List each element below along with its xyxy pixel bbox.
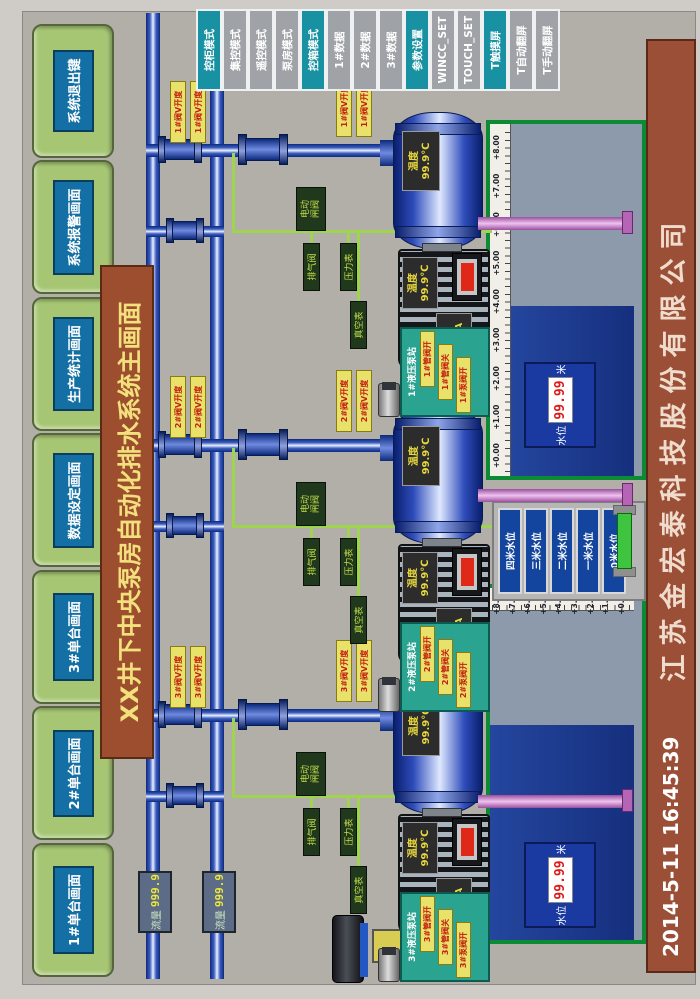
mode-button-3[interactable]: 遥控模式: [248, 9, 274, 91]
pump-flange-ring: [395, 521, 481, 533]
suction-pipe: [478, 489, 628, 502]
hydraulic-station-title: 3#液压泵站: [405, 894, 418, 980]
motor-temp-value: 99.9℃: [420, 560, 432, 597]
gate-valve-box: 电动 闸阀: [296, 752, 326, 796]
hydraulic-tag: 1#泵阀开: [456, 357, 471, 413]
hydraulic-tag: 2#泵阀开: [456, 652, 471, 708]
pressure-gauge-box: 压力表: [340, 808, 357, 856]
signal-line: [232, 718, 235, 798]
gate-valve-label-line2: 闸阀: [311, 765, 321, 783]
hmi-stage: 流量 999.9 流量 999.9 +8.00+7.00+6.00+5.00+4…: [0, 0, 700, 999]
pressure-gauge-box: 压力表: [340, 538, 357, 586]
nav-button-label: 3#单台画面: [53, 593, 94, 681]
terminal-frame: [457, 554, 477, 590]
link-valve[interactable]: [172, 516, 198, 535]
nav-button-label: 系统退出键: [53, 51, 94, 132]
signal-line: [357, 798, 360, 868]
water-level-value: 99.99: [548, 377, 573, 422]
mode-button-14[interactable]: T手动翻屏: [534, 9, 560, 91]
scale-tick-label: +7.00: [492, 174, 501, 199]
datetime-display: 2014-5-11 16:45:39: [659, 737, 683, 957]
hydraulic-tag: 3#管阀关: [438, 909, 453, 965]
coupling: [422, 538, 462, 547]
gate-valve-label-line2: 闸阀: [311, 495, 321, 513]
water-level-label: 水位: [553, 426, 568, 446]
discharge-valve-lower[interactable]: [245, 433, 281, 456]
motor-terminal-box: [452, 253, 482, 301]
mode-button-9[interactable]: 参数设置: [404, 9, 430, 91]
sump-basin-right: +8.00+7.00+6.00+5.00+4.00+3.00+2.00+1.00…: [486, 120, 646, 480]
scale-tick-label: +3.00: [492, 328, 501, 353]
suction-pipe: [478, 217, 628, 230]
hydraulic-station-title: 2#液压泵站: [405, 624, 418, 710]
level-button-3[interactable]: 二米水位: [550, 508, 574, 594]
water-level-label: 水位: [553, 906, 568, 926]
signal-line: [232, 153, 235, 233]
pump-temp-value: 99.9℃: [421, 438, 433, 475]
hydraulic-tag: 1#管阀开: [420, 331, 435, 387]
pump-flange-ring: [395, 791, 481, 803]
water-level-display-right: 水位 99.99 米: [524, 362, 596, 448]
vacuum-gauge-box: 真空表: [350, 301, 367, 349]
motor-temp-caption: 温度: [408, 838, 420, 858]
coupling: [422, 243, 462, 252]
suction-foot-valve: [622, 789, 633, 812]
scale-tick-label: +1.00: [492, 405, 501, 430]
signal-line: [357, 528, 360, 598]
mode-button-4[interactable]: 泵房模式: [274, 9, 300, 91]
page-title: XX井下中央泵房自动化排水系统主画面: [110, 302, 145, 723]
vacuum-gauge-box: 真空表: [350, 866, 367, 914]
priming-pump-icon: [378, 678, 400, 712]
valve-flange: [196, 513, 204, 538]
hydraulic-tag: 3#管阀开: [420, 896, 435, 952]
hydraulic-station-title: 1#液压泵站: [405, 329, 418, 415]
title-banner: XX井下中央泵房自动化排水系统主画面: [100, 265, 154, 759]
company-name: 江苏金宏泰科技股份有限公司: [652, 214, 691, 682]
signal-line: [232, 448, 235, 528]
motor-temperature-label: 温度 99.9℃: [402, 257, 438, 309]
motor-terminal-box: [452, 548, 482, 596]
priming-pump-icon: [378, 383, 400, 417]
mode-button-5[interactable]: 控箱模式: [300, 9, 326, 91]
link-valve[interactable]: [172, 786, 198, 805]
nav-button-label: 2#单台画面: [53, 730, 94, 818]
mode-button-10[interactable]: WINCC_SET: [430, 9, 456, 91]
hydraulic-tag: 3#泵阀开: [456, 922, 471, 978]
valve-flange: [279, 429, 288, 460]
gate-valve-label-line2: 闸阀: [311, 200, 321, 218]
terminal-frame: [457, 259, 477, 295]
motor-temp-caption: 温度: [408, 568, 420, 588]
level-button-1[interactable]: 四米水位: [498, 508, 522, 594]
pump-temperature-label: 温度 99.9℃: [402, 131, 440, 191]
sump-level-scale-horizontal: +8.00+7.00+6.00+5.00+4.00+3.00+2.00+1.00…: [490, 124, 511, 476]
level-button-2[interactable]: 三米水位: [524, 508, 548, 594]
level-button-4[interactable]: 一米水位: [576, 508, 600, 594]
scale-tick-label: +5.00: [492, 251, 501, 276]
sump-basin-left: +8.00+7.00+6.00+5.00+4.00+3.00+2.00+1.00…: [486, 584, 646, 944]
alarm-indicator: [461, 828, 474, 856]
water-level-unit: 米: [553, 844, 568, 854]
gate-valve-label-line1: 电动: [301, 495, 311, 513]
mode-button-11[interactable]: TOUCH_SET: [456, 9, 482, 91]
signal-line: [357, 233, 360, 303]
suction-foot-valve: [622, 483, 633, 506]
pump-unit-1: 1#阀V开度 1#阀V开度 1#阀V开度 1#阀V开度 电动 闸阀 排气阀 压力…: [140, 59, 492, 429]
nav-button-label: 生产统计画面: [53, 317, 94, 411]
hydraulic-tag: 2#管阀开: [420, 626, 435, 682]
mode-button-12[interactable]: T触摸屏: [482, 9, 508, 91]
hydraulic-tag: 2#管阀关: [438, 639, 453, 695]
hydraulic-station-panel[interactable]: 2#液压泵站 2#管阀开 2#管阀关 2#泵阀开: [400, 622, 490, 712]
mode-button-7[interactable]: 2#数据: [352, 9, 378, 91]
scale-tick-label: +0.00: [492, 443, 501, 468]
water-level-unit: 米: [553, 364, 568, 374]
air-valve-box: 排气阀: [303, 538, 320, 586]
motor-terminal-box: [452, 818, 482, 866]
scale-tick-label: +2.00: [492, 366, 501, 391]
suction-foot-valve: [622, 211, 633, 234]
pump-temp-caption: 温度: [409, 446, 421, 466]
alarm-indicator: [461, 558, 474, 586]
air-valve-box: 排气阀: [303, 243, 320, 291]
mode-button-6[interactable]: 1#数据: [326, 9, 352, 91]
priming-pump-icon: [378, 948, 400, 982]
gate-valve-box: 电动 闸阀: [296, 482, 326, 526]
suction-pipe: [478, 795, 628, 808]
nav-button-label: 数据设定画面: [53, 454, 94, 548]
nav-button-label: 系统报警画面: [53, 181, 94, 275]
gate-valve-box: 电动 闸阀: [296, 187, 326, 231]
motor-temperature-label: 温度 99.9℃: [402, 822, 438, 874]
valve-flange: [196, 218, 204, 243]
nav-button-7[interactable]: 系统退出键: [32, 24, 114, 158]
hydraulic-station-panel[interactable]: 3#液压泵站 3#管阀开 3#管阀关 3#泵阀开: [400, 892, 490, 982]
hydraulic-tag: 1#管阀关: [438, 344, 453, 400]
alarm-indicator: [461, 263, 474, 291]
scale-tick-label: +4.00: [492, 289, 501, 314]
hydraulic-station-panel[interactable]: 1#液压泵站 1#管阀开 1#管阀关 1#泵阀开: [400, 327, 490, 417]
motor-temp-value: 99.9℃: [420, 265, 432, 302]
coupling: [422, 808, 462, 817]
gate-valve-label-line1: 电动: [301, 765, 311, 783]
gate-valve-label-line1: 电动: [301, 200, 311, 218]
level-indicator-bar: [617, 513, 632, 569]
nav-button-label: 1#单台画面: [53, 866, 94, 954]
pressure-gauge-box: 压力表: [340, 243, 357, 291]
valve-flange: [279, 134, 288, 165]
mode-button-8[interactable]: 3#数据: [378, 9, 404, 91]
air-valve-box: 排气阀: [303, 808, 320, 856]
pump-flange-ring: [395, 226, 481, 238]
scale-tick-label: +8.00: [492, 135, 501, 160]
discharge-valve-lower[interactable]: [245, 138, 281, 161]
mode-button-1[interactable]: 控柜模式: [196, 9, 222, 91]
valve-opening-tag: 1#阀V开度: [170, 81, 186, 143]
motor-temp-value: 99.9℃: [420, 830, 432, 867]
water-level-display-left: 水位 99.99 米: [524, 842, 596, 928]
pump-temp-caption: 温度: [409, 151, 421, 171]
company-bar: 2014-5-11 16:45:39 江苏金宏泰科技股份有限公司: [646, 39, 696, 973]
terminal-frame: [457, 824, 477, 860]
pump-temperature-label: 温度 99.9℃: [402, 426, 440, 486]
mode-button-2[interactable]: 集控模式: [222, 9, 248, 91]
nav-button-1[interactable]: 1#单台画面: [32, 843, 114, 977]
motor-temp-caption: 温度: [408, 273, 420, 293]
water-level-value: 99.99: [548, 857, 573, 902]
mode-button-13[interactable]: T自动翻屏: [508, 9, 534, 91]
vacuum-gauge-box: 真空表: [350, 596, 367, 644]
link-valve[interactable]: [172, 221, 198, 240]
valve-flange: [196, 783, 204, 808]
pump-temp-value: 99.9℃: [421, 143, 433, 180]
motor-temperature-label: 温度 99.9℃: [402, 552, 438, 604]
